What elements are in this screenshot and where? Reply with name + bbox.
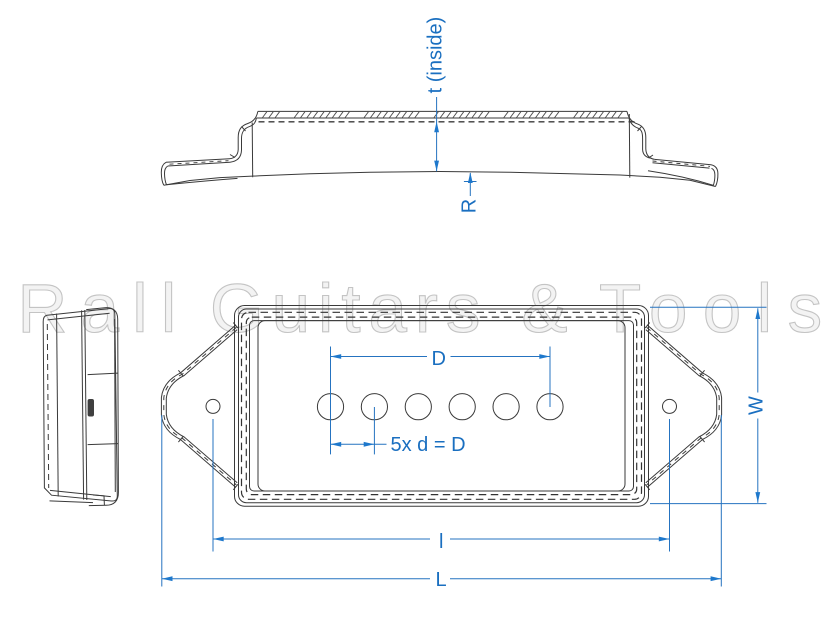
svg-text:L: L [436, 569, 447, 591]
svg-text:t (inside): t (inside) [424, 17, 446, 94]
svg-text:5x d = D: 5x d = D [391, 434, 466, 456]
svg-text:D: D [432, 348, 446, 370]
svg-text:l: l [439, 531, 443, 553]
svg-text:W: W [745, 396, 767, 415]
svg-text:R: R [458, 199, 480, 213]
